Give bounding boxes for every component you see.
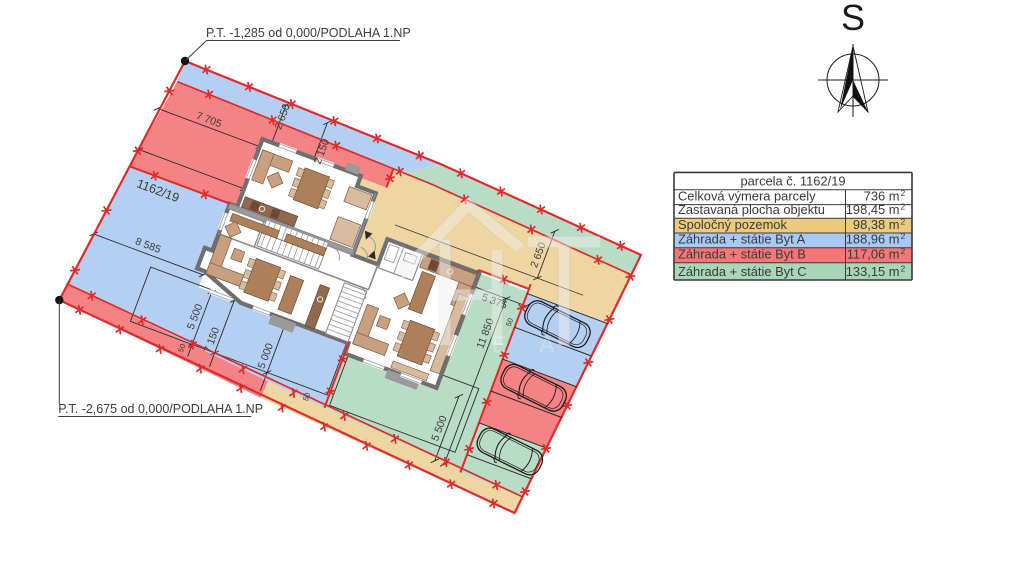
svg-text:2: 2 [901,202,906,212]
svg-text:98,38 m: 98,38 m [853,217,900,232]
svg-text:E A: E A [492,332,568,357]
svg-text:133,15 m: 133,15 m [846,264,900,279]
svg-text:Záhrada + státie Byt C: Záhrada + státie Byt C [678,264,807,279]
svg-text:P.T. -2,675 od 0,000/PODLAHA 1: P.T. -2,675 od 0,000/PODLAHA 1.NP [58,402,263,416]
svg-text:Spoločný pozemok: Spoločný pozemok [678,217,787,232]
svg-text:P.T. -1,285 od 0,000/PODLAHA 1: P.T. -1,285 od 0,000/PODLAHA 1.NP [206,26,411,40]
svg-text:117,06 m: 117,06 m [847,247,900,262]
svg-text:2: 2 [901,263,906,273]
svg-text:188,96 m: 188,96 m [846,232,900,247]
svg-text:parcela č. 1162/19: parcela č. 1162/19 [740,174,845,189]
svg-text:Záhrada + státie Byt A: Záhrada + státie Byt A [678,232,806,247]
svg-text:Záhrada + státie Byt B: Záhrada + státie Byt B [678,247,806,262]
svg-text:S: S [841,0,865,38]
